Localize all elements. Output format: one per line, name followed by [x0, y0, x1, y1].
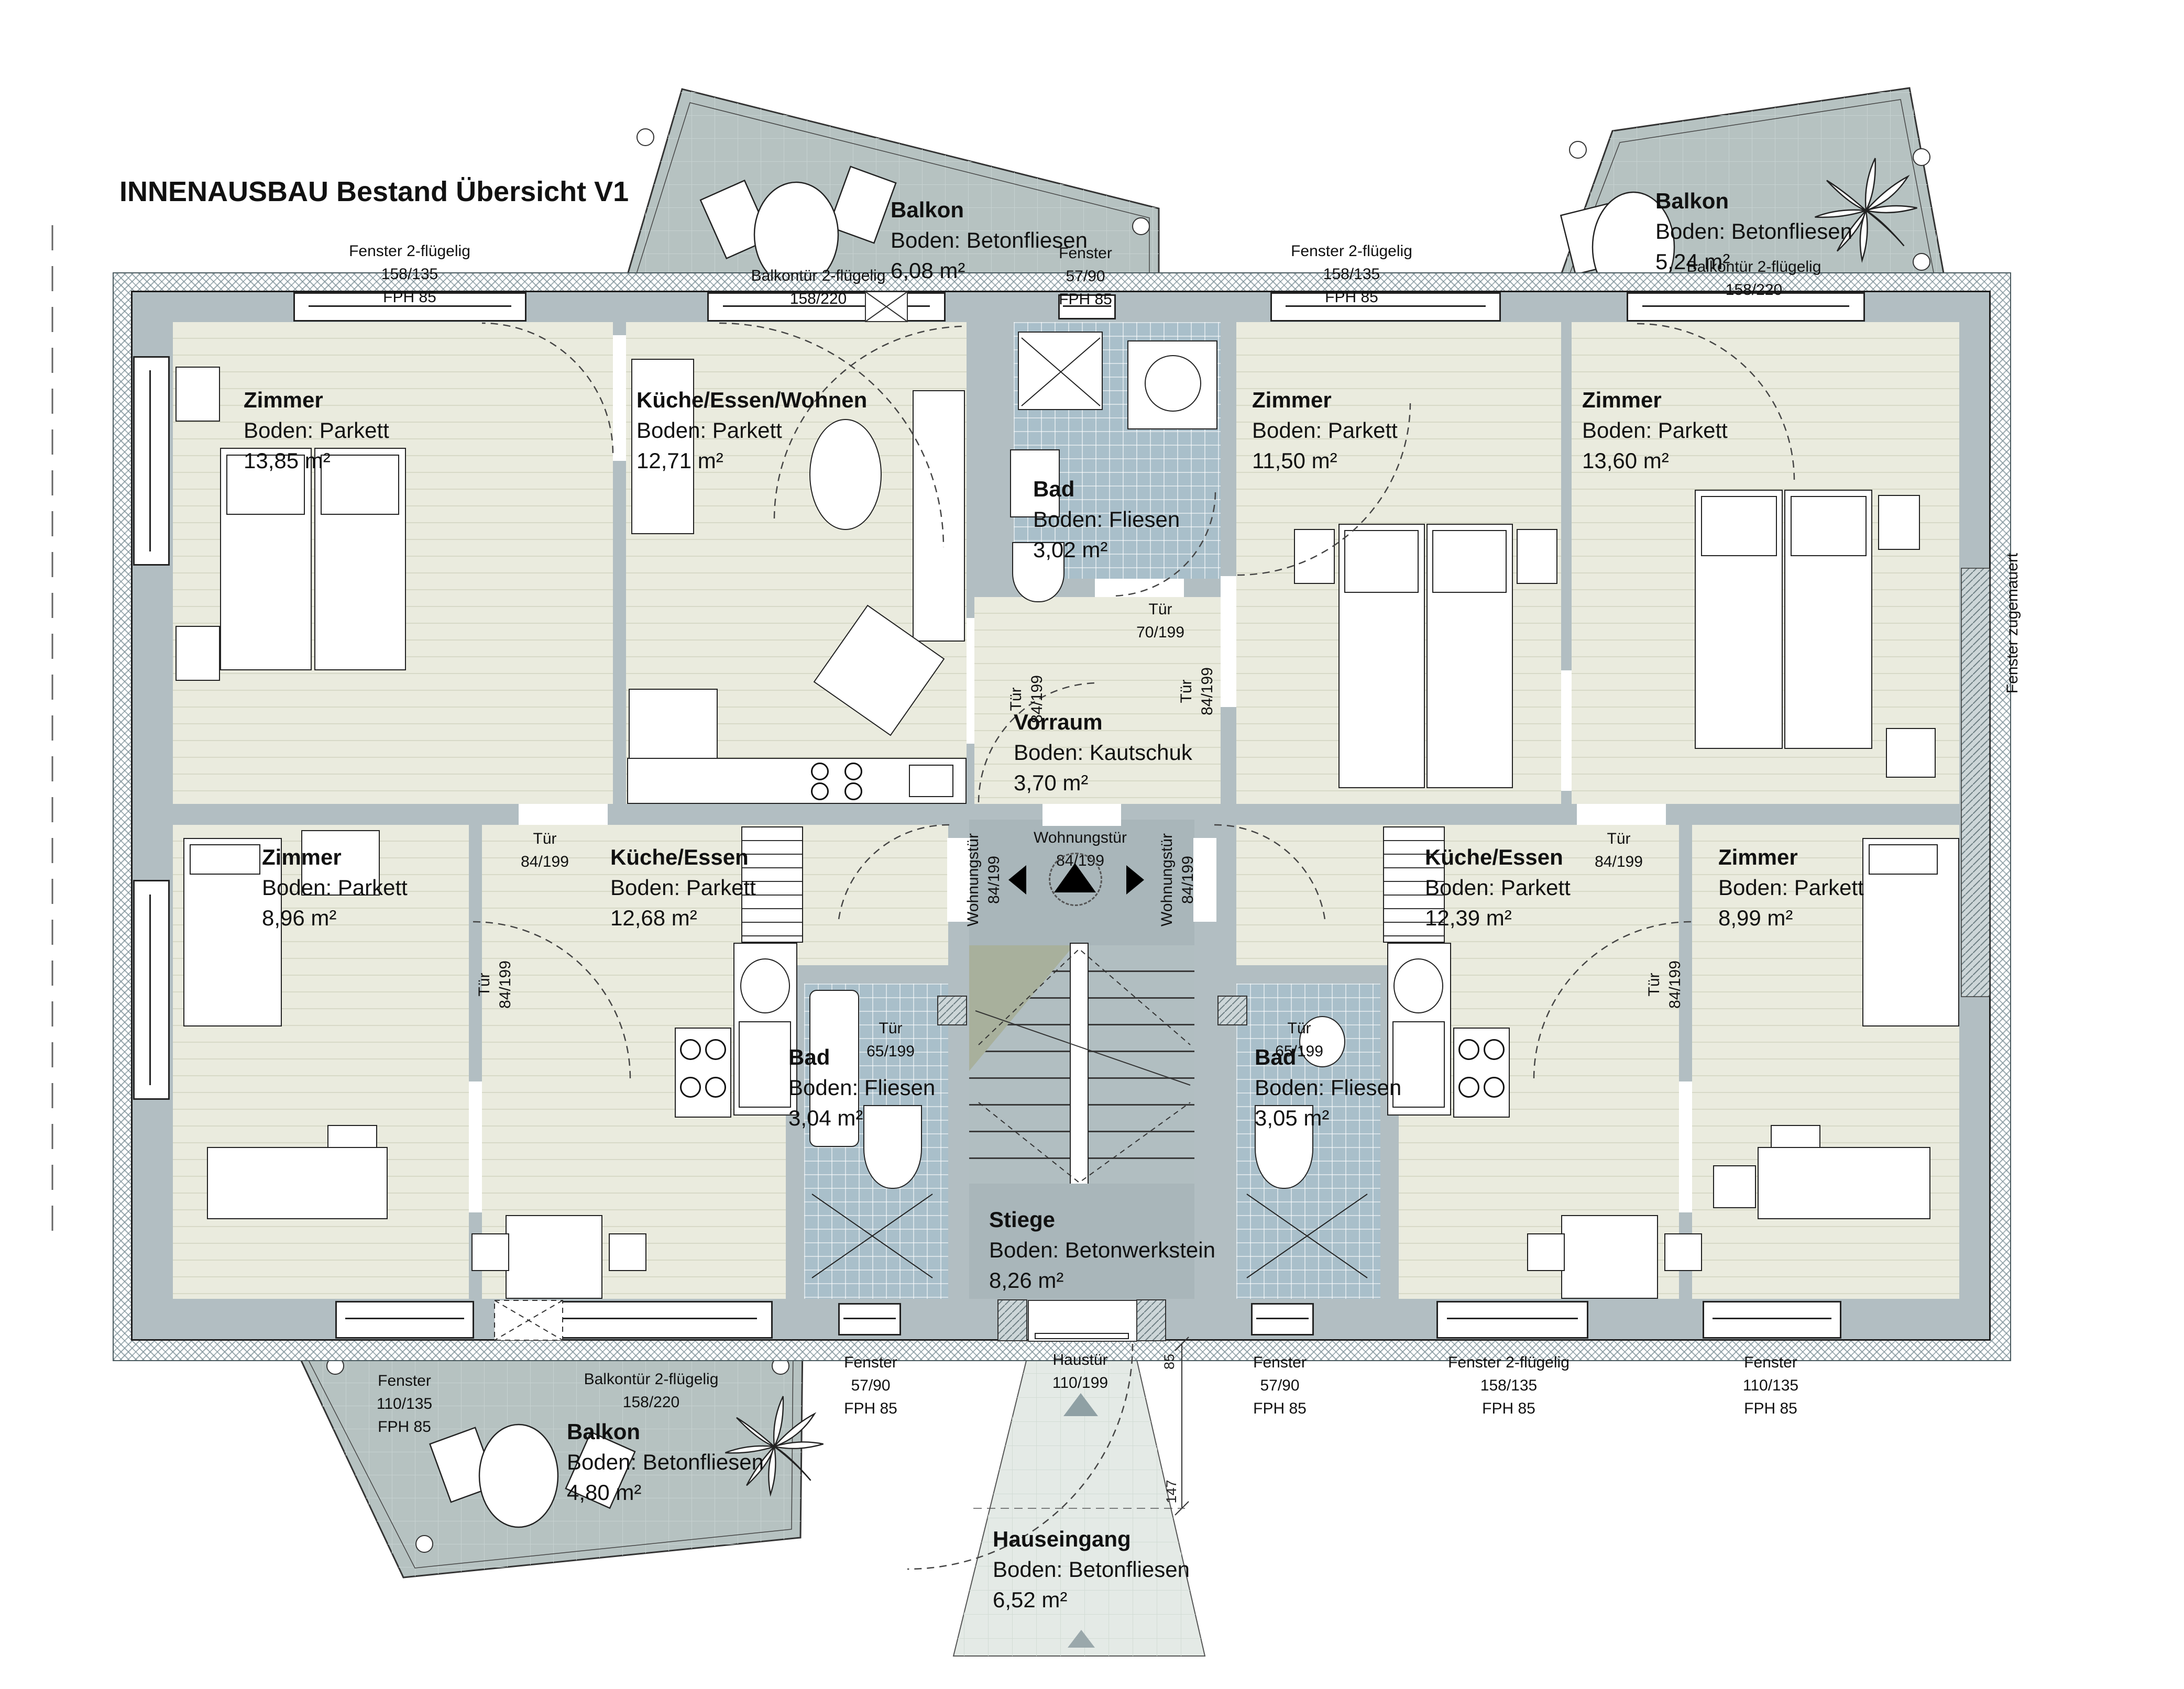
annotation-tuer-65: Tür65/199	[1275, 1017, 1323, 1063]
dining-table	[506, 1215, 602, 1299]
entrance-arrow-icon	[1068, 1630, 1095, 1648]
room-label-balkon-bl: BalkonBoden: Betonfliesen4,80 m²	[567, 1417, 764, 1508]
door-opening	[613, 335, 626, 461]
arrow-left-icon	[1008, 865, 1026, 895]
nightstand	[175, 626, 220, 681]
annotation-fenster-zugemauert: Fenster zugemauert	[2002, 553, 2023, 693]
annotation-fenster-2fl-top-left: Fenster 2-flügelig158/135FPH 85	[349, 240, 470, 309]
annotation-tuer-65: Tür65/199	[866, 1017, 915, 1063]
side-table	[1886, 728, 1936, 778]
room-label-stiege: StiegeBoden: Betonwerkstein8,26 m²	[989, 1205, 1215, 1296]
door-opening	[1221, 576, 1236, 707]
room-label-zimmer-1360: ZimmerBoden: Parkett13,60 m²	[1582, 385, 1728, 476]
annotation-fenster-110-bottom-left: Fenster110/135FPH 85	[377, 1370, 432, 1439]
nightstand	[175, 367, 220, 422]
room-label-zimmer-bl: ZimmerBoden: Parkett8,96 m²	[262, 842, 408, 933]
annotation-tuer-84: Tür84/199	[521, 827, 569, 874]
washing-machine-drum	[1145, 355, 1201, 412]
balcony-door	[534, 1301, 773, 1339]
annotation-fenster-57-bottom-left: Fenster57/90FPH 85	[844, 1351, 897, 1420]
room-label-zimmer-tl: ZimmerBoden: Parkett13,85 m²	[244, 385, 389, 476]
room-label-zimmer-1150: ZimmerBoden: Parkett11,50 m²	[1252, 385, 1398, 476]
annotation-fenster-2fl-bottom: Fenster 2-flügelig158/135FPH 85	[1448, 1351, 1570, 1420]
room-label-kew: Küche/Essen/WohnenBoden: Parkett12,71 m²	[636, 385, 867, 476]
nightstand	[1878, 495, 1920, 550]
dimension-147: 147	[1161, 1480, 1182, 1503]
chair	[609, 1233, 646, 1271]
floor-plan: INNENAUSBAU Bestand Übersicht V1 ZimmerB…	[0, 0, 2184, 1689]
wall	[1236, 965, 1399, 984]
window	[838, 1303, 901, 1335]
annotation-balkontuer-top-right: Balkontür 2-flügelig158/220	[1687, 256, 1821, 302]
annotation-wohnungstuer-right: Wohnungstür84/199	[1157, 833, 1199, 926]
annotation-tuer-84-vert: Tür84/199	[1644, 961, 1686, 1009]
entrance-door-leaf	[1035, 1333, 1129, 1339]
kitchen-sink	[909, 765, 953, 797]
kitchen-sink	[740, 958, 790, 1013]
desk-shelf	[327, 1125, 377, 1148]
chair	[1713, 1165, 1756, 1208]
pillow	[1344, 530, 1419, 593]
dimension-85: 85	[1159, 1354, 1180, 1370]
pillow	[1432, 530, 1507, 593]
annotation-balkontuer-bottom-left: Balkontür 2-flügelig158/220	[584, 1368, 719, 1414]
pillow	[1701, 496, 1777, 556]
annotation-tuer-84-vert: Tür84/199	[474, 961, 516, 1009]
entrance-arrow-icon	[1063, 1393, 1098, 1416]
door-opening	[519, 804, 608, 825]
stair-stringer	[1070, 943, 1089, 1186]
annotation-haustuer: Haustür110/199	[1052, 1349, 1108, 1395]
room-label-kueche-right: Küche/EssenBoden: Parkett12,39 m²	[1425, 842, 1571, 933]
room-label-balkon-tl: BalkonBoden: Betonfliesen6,08 m²	[891, 195, 1088, 286]
pillow	[1869, 844, 1938, 875]
wall	[1221, 322, 1236, 804]
kitchen-sink	[1393, 958, 1443, 1013]
arrow-up-icon	[1054, 863, 1096, 892]
stove	[675, 1028, 731, 1118]
door-opening	[1561, 670, 1572, 791]
pillow	[1791, 496, 1867, 556]
desk	[1758, 1147, 1930, 1219]
apartment-door-opening	[1042, 804, 1121, 826]
wall	[786, 965, 948, 984]
annotation-fenster-110-bottom-right: Fenster110/135FPH 85	[1743, 1351, 1798, 1420]
kitchen-sink-basin	[739, 1021, 791, 1108]
annotation-wohnungstuer-left: Wohnungstür84/199	[963, 833, 1005, 926]
window	[1436, 1301, 1588, 1339]
door-opening	[1095, 579, 1184, 597]
desk	[207, 1147, 388, 1219]
annotation-fenster-57-top: Fenster57/90FPH 85	[1059, 242, 1112, 311]
desk-shelf	[1771, 1125, 1820, 1148]
page-title: INNENAUSBAU Bestand Übersicht V1	[119, 175, 629, 208]
room-label-zimmer-br: ZimmerBoden: Parkett8,99 m²	[1718, 842, 1864, 933]
door-opening	[1679, 1081, 1692, 1212]
annotation-tuer-84-vert: Tür84/199	[1006, 675, 1048, 723]
window	[1251, 1303, 1314, 1335]
annotation-tuer-84: Tür84/199	[1595, 827, 1643, 874]
nightstand	[1294, 529, 1335, 584]
annotation-fenster-57-bottom-right: Fenster57/90FPH 85	[1253, 1351, 1307, 1420]
sofa	[913, 390, 965, 642]
window	[133, 880, 170, 1100]
room-label-hauseingang: HauseingangBoden: Betonfliesen6,52 m²	[993, 1524, 1190, 1615]
window	[133, 356, 170, 566]
stove	[807, 758, 875, 803]
window	[1703, 1301, 1841, 1339]
annotation-tuer-70: Tür70/199	[1136, 598, 1184, 644]
chair	[471, 1233, 509, 1271]
door-opening	[1577, 804, 1666, 825]
nightstand	[1517, 529, 1557, 584]
door-opening	[469, 1081, 482, 1212]
room-label-bad-top: BadBoden: Fliesen3,02 m²	[1033, 474, 1180, 565]
annotation-tuer-84-vert: Tür84/199	[1176, 667, 1218, 715]
arrow-right-icon	[1126, 865, 1144, 895]
dining-table	[1561, 1215, 1658, 1299]
room-label-kueche-left: Küche/EssenBoden: Parkett12,68 m²	[610, 842, 756, 933]
window	[335, 1301, 474, 1339]
chair	[1527, 1233, 1565, 1271]
annotation-balkontuer-top-left: Balkontür 2-flügelig158/220	[751, 264, 886, 311]
door-opening	[967, 618, 974, 744]
shower	[1018, 332, 1103, 410]
stove	[1453, 1028, 1510, 1118]
chair	[1664, 1233, 1702, 1271]
pillow	[190, 844, 260, 875]
annotation-fenster-2fl-top-right: Fenster 2-flügelig158/135FPH 85	[1291, 240, 1412, 309]
